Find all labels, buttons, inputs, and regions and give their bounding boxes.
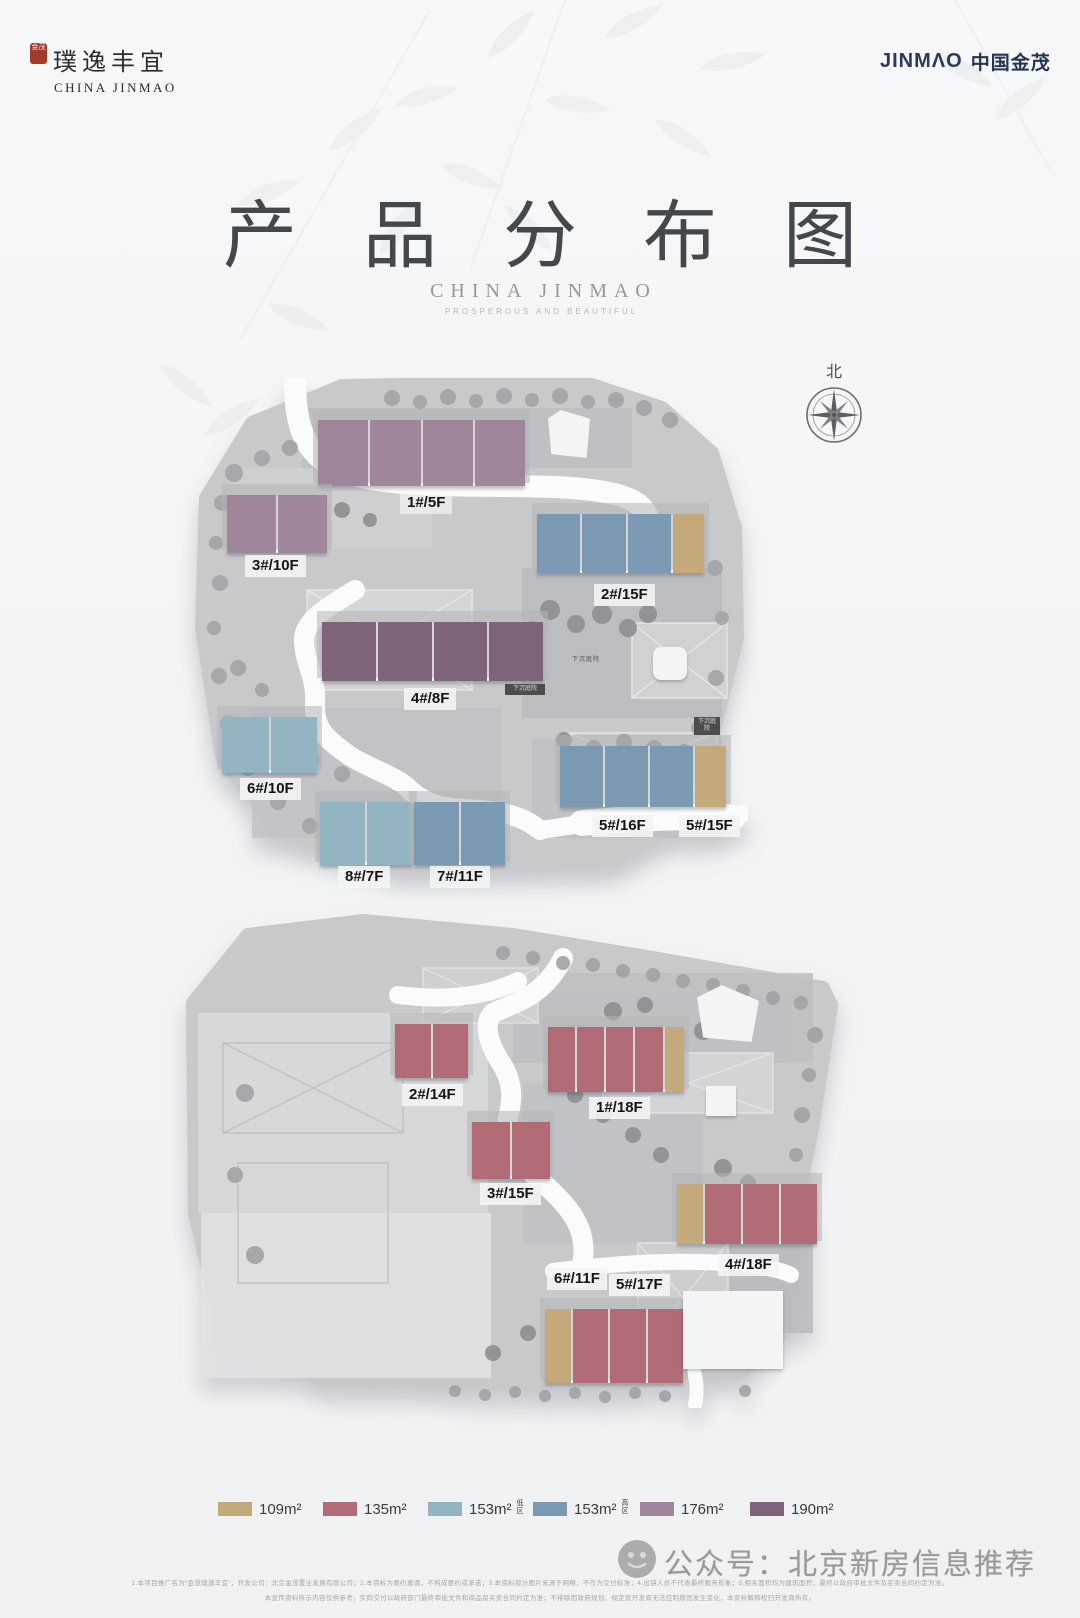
legend-swatch-135 — [323, 1502, 357, 1516]
building-unit — [548, 1027, 575, 1092]
legend-item-109: 109m² — [218, 1500, 302, 1518]
building-l2 — [395, 1024, 468, 1078]
page-subtitle: CHINA JINMAO — [0, 280, 1080, 303]
building-unit — [370, 420, 420, 486]
label-building-l1: 1#/18F — [589, 1097, 650, 1119]
legend-label-135: 135m² — [364, 1501, 407, 1518]
building-l5 — [545, 1309, 683, 1383]
jinmao-logo: JINMΛO 中国金茂 — [880, 48, 1051, 75]
label-building-l5: 5#/17F — [609, 1274, 670, 1296]
white-building — [548, 410, 590, 458]
building-7 — [414, 802, 505, 865]
jinmao-seal-icon: 金茂 — [30, 43, 47, 64]
sunken-courtyard-text: 下沉庭院 — [572, 654, 600, 663]
compass: 北 — [798, 358, 870, 446]
label-building-4: 4#/8F — [404, 688, 456, 710]
building-unit — [577, 1027, 604, 1092]
building-unit — [673, 514, 704, 573]
disclaimer-line-1: 1.本项目推广名为“金茂璞逸丰宜”，开发公司：北京金茂置业发展有限公司；2.本资… — [0, 1577, 1080, 1587]
label-building-l2: 2#/14F — [402, 1084, 463, 1106]
legend-label-109: 109m² — [259, 1501, 302, 1518]
legend-item-153-low: 153m² 低区 — [428, 1500, 526, 1518]
building-unit — [545, 1309, 571, 1383]
building-unit — [423, 420, 473, 486]
legend-label-176: 176m² — [681, 1501, 724, 1518]
building-l1 — [548, 1027, 684, 1092]
legend-label-190: 190m² — [791, 1501, 834, 1518]
jinmao-logo-cn: 中国金茂 — [971, 48, 1051, 75]
white-hut — [706, 1086, 736, 1116]
wechat-account-icon — [616, 1538, 658, 1580]
building-unit — [414, 802, 459, 865]
legend-item-135: 135m² — [323, 1500, 407, 1518]
building-unit — [743, 1184, 779, 1244]
disclaimer-line-2: 本宣传资料所示内容仅供参考，实际交付以政府部门最终审批文件和商品房买卖合同约定为… — [0, 1592, 1080, 1602]
building-unit — [781, 1184, 817, 1244]
building-8 — [320, 802, 412, 865]
building-2 — [537, 514, 704, 573]
page-tagline: PROSPEROUS AND BEAUTIFUL — [0, 307, 1080, 316]
building-unit — [605, 746, 648, 807]
label-building-1: 1#/5F — [400, 492, 452, 514]
sunken-courtyard-label: 下沉庭院 — [505, 684, 545, 695]
building-unit — [582, 514, 625, 573]
brand-lockup: 金茂璞逸丰宜 CHINA JINMAO — [30, 42, 177, 96]
building-unit — [512, 1122, 550, 1179]
building-unit — [665, 1027, 685, 1092]
building-unit — [433, 1024, 469, 1078]
building-l4 — [677, 1184, 817, 1244]
label-building-3: 3#/10F — [245, 555, 306, 577]
building-unit — [628, 514, 671, 573]
building-l3 — [472, 1122, 550, 1179]
building-6 — [222, 717, 317, 773]
label-building-l4: 4#/18F — [718, 1254, 779, 1276]
building-unit — [320, 802, 365, 865]
building-5 — [560, 746, 726, 807]
building-unit — [278, 495, 327, 553]
poster-page: 金茂璞逸丰宜 CHINA JINMAO JINMΛO 中国金茂 产品分布图 CH… — [0, 0, 1080, 1618]
sunken-courtyard-label-2: 下沉庭院 — [694, 717, 720, 735]
brand-name-cn: 璞逸丰宜 — [53, 50, 169, 76]
building-3 — [227, 495, 327, 553]
building-unit — [475, 420, 525, 486]
page-title: 产品分布图 — [0, 176, 1080, 283]
building-unit — [222, 717, 269, 773]
building-unit — [367, 802, 412, 865]
building-unit — [650, 746, 693, 807]
brand-name-en: CHINA JINMAO — [54, 80, 177, 96]
building-unit — [227, 495, 276, 553]
building-unit — [610, 1309, 645, 1383]
building-unit — [537, 514, 580, 573]
compass-rose-icon — [803, 384, 865, 446]
building-unit — [472, 1122, 510, 1179]
building-unit — [318, 420, 368, 486]
legend-label-153-high: 153m² — [574, 1501, 617, 1518]
label-building-2: 2#/15F — [594, 584, 655, 606]
legend-swatch-153-high — [533, 1502, 567, 1516]
legend-tag-153-high: 高区 — [622, 1500, 631, 1516]
building-4 — [322, 622, 543, 681]
building-unit — [395, 1024, 431, 1078]
jinmao-logo-en: JINMΛO — [880, 50, 963, 73]
building-unit — [573, 1309, 608, 1383]
label-building-5-15: 5#/15F — [679, 815, 740, 837]
legend-swatch-153-low — [428, 1502, 462, 1516]
building-unit — [648, 1309, 683, 1383]
legend-swatch-176 — [640, 1502, 674, 1516]
building-unit — [677, 1184, 703, 1244]
building-unit — [560, 746, 603, 807]
building-unit — [378, 622, 432, 681]
building-unit — [489, 622, 543, 681]
legend-item-153-high: 153m² 高区 — [533, 1500, 631, 1518]
label-building-8: 8#/7F — [338, 866, 390, 888]
white-building-large — [683, 1291, 783, 1369]
building-unit — [461, 802, 506, 865]
building-unit — [705, 1184, 741, 1244]
building-unit — [606, 1027, 633, 1092]
legend-label-153-low: 153m² — [469, 1501, 512, 1518]
label-building-l6: 6#/11F — [547, 1268, 607, 1290]
building-unit — [322, 622, 376, 681]
label-building-6: 6#/10F — [240, 778, 301, 800]
label-building-7: 7#/11F — [430, 866, 490, 888]
legend-tag-153-low: 低区 — [517, 1500, 526, 1516]
label-building-l3: 3#/15F — [480, 1183, 541, 1205]
building-unit — [434, 622, 488, 681]
legend-item-190: 190m² — [750, 1500, 834, 1518]
label-building-5-16: 5#/16F — [592, 815, 653, 837]
white-pavilion — [653, 647, 687, 680]
building-unit — [271, 717, 318, 773]
legend-swatch-190 — [750, 1502, 784, 1516]
building-1 — [318, 420, 525, 486]
building-unit — [695, 746, 726, 807]
legend-item-176: 176m² — [640, 1500, 724, 1518]
building-unit — [635, 1027, 662, 1092]
compass-north-label: 北 — [798, 358, 870, 382]
legend-swatch-109 — [218, 1502, 252, 1516]
